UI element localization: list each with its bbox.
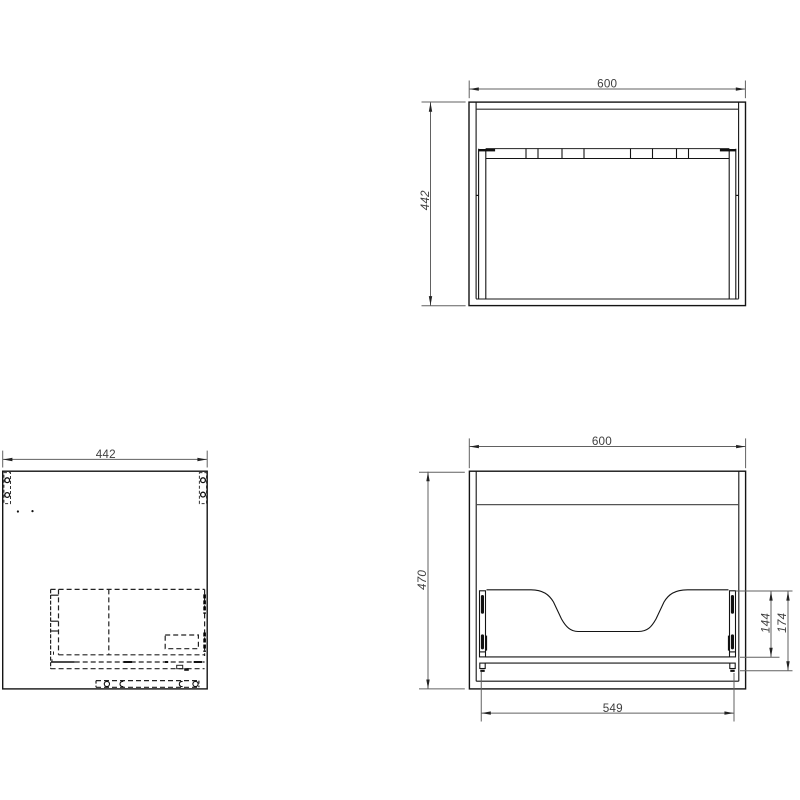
svg-text:470: 470 [416, 570, 429, 590]
svg-text:442: 442 [419, 190, 432, 210]
svg-text:442: 442 [96, 448, 116, 461]
svg-text:174: 174 [776, 612, 789, 632]
svg-text:144: 144 [759, 613, 772, 633]
svg-text:549: 549 [603, 702, 623, 715]
svg-text:600: 600 [592, 435, 612, 448]
svg-text:600: 600 [597, 78, 617, 91]
